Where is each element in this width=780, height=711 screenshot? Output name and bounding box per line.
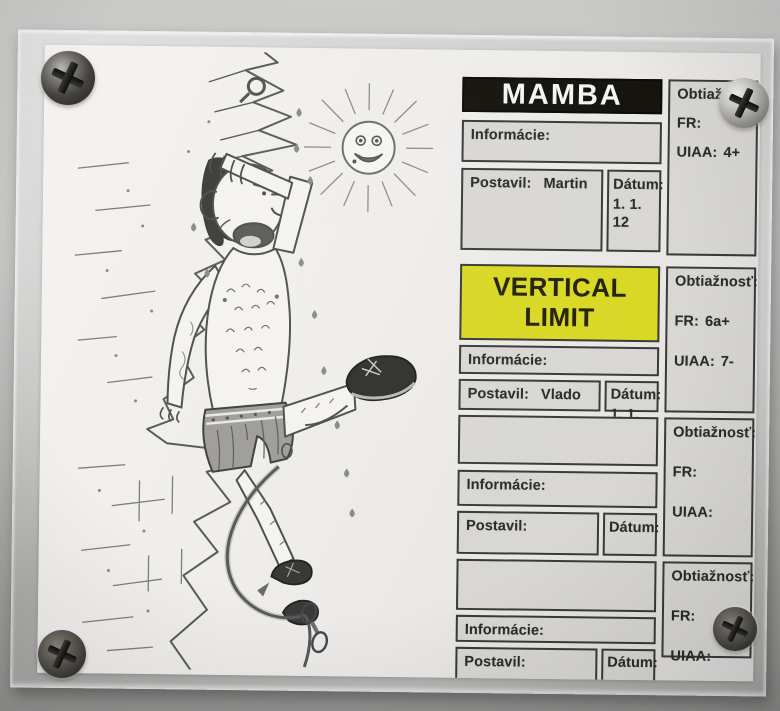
routes-table: MAMBA Informácie: Postavil:Martin Dátum:… [455, 50, 759, 682]
climber-figure [157, 106, 423, 668]
datum-cell: Dátum: [603, 513, 658, 557]
datum-value: 1. 1. 12 [613, 196, 655, 233]
sign-paper: MAMBA Informácie: Postavil:Martin Dátum:… [37, 45, 761, 682]
rock-speckles [96, 119, 210, 613]
route-title-empty [458, 415, 659, 466]
info-cell: Informácie: [461, 120, 661, 164]
screw-top-left-icon [41, 51, 95, 105]
difficulty-label: Obtiažnosť: [675, 272, 747, 291]
postavil-label: Postavil: [470, 175, 532, 192]
info-label: Informácie: [465, 622, 544, 639]
info-cell: Informácie: [459, 345, 659, 376]
info-cell: Informácie: [457, 470, 657, 508]
datum-value [607, 674, 649, 675]
datum-label: Dátum: [609, 520, 660, 537]
climber-bent-leg [283, 383, 356, 438]
postavil-label: Postavil: [468, 386, 530, 403]
datum-label: Dátum: [613, 177, 664, 194]
datum-label: Dátum: [611, 387, 662, 404]
info-cell: Informácie: [456, 615, 656, 644]
postavil-label: Postavil: [464, 654, 526, 671]
fr-grade: FR: [673, 464, 745, 483]
climber-hanging-leg [236, 470, 295, 567]
rock-cracks [70, 162, 186, 651]
difficulty-label: Obtiažnosť: [673, 423, 745, 442]
screw-bottom-left-icon [38, 630, 86, 678]
datum-cell: Dátum: [601, 649, 655, 682]
datum-value [609, 539, 651, 540]
screw-top-right-icon [719, 78, 769, 128]
uiaa-grade: UIAA:4+ [676, 144, 748, 163]
info-label: Informácie: [466, 477, 545, 494]
climber-cartoon-illustration [52, 50, 455, 673]
datum-cell: Dátum:1. 1. 12 [604, 381, 658, 413]
uiaa-grade: UIAA:7- [674, 353, 746, 372]
postavil-cell: Postavil:Martin [460, 168, 603, 252]
info-label: Informácie: [468, 352, 547, 369]
postavil-cell: Postavil: [455, 647, 597, 682]
fr-grade: FR:6a+ [674, 313, 746, 332]
postavil-value: Vlado [541, 387, 581, 403]
postavil-cell: Postavil:Vlado [458, 379, 600, 412]
acrylic-plate: MAMBA Informácie: Postavil:Martin Dátum:… [10, 29, 774, 696]
difficulty-cell: Obtiažnosť: FR:6a+ UIAA:7- [664, 266, 756, 413]
postavil-value: Martin [543, 176, 587, 193]
route-title-mamba: MAMBA [462, 77, 662, 114]
climber-shorts [203, 402, 294, 473]
photo-of-climbing-sign: MAMBA Informácie: Postavil:Martin Dátum:… [0, 0, 780, 711]
datum-cell: Dátum:1. 1. 12 [606, 170, 661, 253]
datum-label: Dátum: [607, 655, 658, 672]
sun-icon [304, 83, 434, 213]
screw-bottom-right-icon [713, 607, 757, 651]
route-title-vertical-limit: VERTICAL LIMIT [459, 264, 660, 342]
difficulty-label: Obtiažnosť: [671, 567, 743, 586]
postavil-cell: Postavil: [457, 511, 600, 556]
postavil-label: Postavil: [466, 518, 528, 535]
climber-torso [205, 248, 291, 413]
difficulty-cell: Obtiažnosť: FR: UIAA: [663, 417, 755, 557]
info-label: Informácie: [471, 127, 550, 144]
route-title-empty [456, 559, 657, 612]
uiaa-grade: UIAA: [672, 504, 744, 523]
